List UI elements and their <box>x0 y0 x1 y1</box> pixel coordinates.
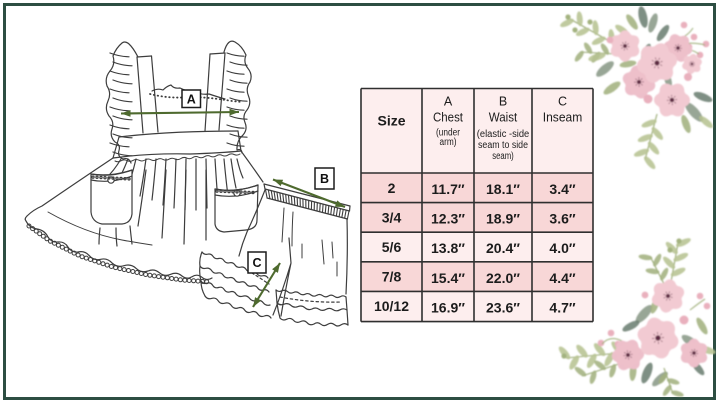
svg-text:16.9″: 16.9″ <box>431 299 465 315</box>
svg-text:3.6″: 3.6″ <box>549 211 575 227</box>
svg-text:2: 2 <box>388 180 396 196</box>
svg-text:seam): seam) <box>492 151 514 162</box>
svg-text:7/8: 7/8 <box>382 269 402 285</box>
svg-text:18.1″: 18.1″ <box>486 181 520 197</box>
svg-text:15.4″: 15.4″ <box>431 270 465 286</box>
svg-text:20.4″: 20.4″ <box>486 240 520 256</box>
svg-text:arm): arm) <box>440 137 457 148</box>
svg-text:(elastic -side: (elastic -side <box>477 129 530 140</box>
svg-text:4.4″: 4.4″ <box>549 270 575 286</box>
svg-text:3.4″: 3.4″ <box>549 181 575 197</box>
svg-text:Inseam: Inseam <box>543 111 583 125</box>
svg-text:Size: Size <box>377 113 405 129</box>
svg-text:B: B <box>499 95 507 109</box>
svg-text:4.7″: 4.7″ <box>549 299 575 315</box>
svg-text:5/6: 5/6 <box>382 239 402 255</box>
svg-text:B: B <box>320 172 329 186</box>
svg-text:C: C <box>558 95 567 109</box>
svg-text:Waist: Waist <box>489 110 518 124</box>
svg-text:11.7″: 11.7″ <box>431 181 464 197</box>
svg-text:10/12: 10/12 <box>374 298 409 314</box>
svg-text:A: A <box>444 95 453 109</box>
svg-text:seam to side: seam to side <box>478 140 528 151</box>
svg-text:4.0″: 4.0″ <box>549 240 575 256</box>
svg-text:Chest: Chest <box>433 111 463 125</box>
svg-text:18.9″: 18.9″ <box>486 211 520 227</box>
svg-text:3/4: 3/4 <box>382 209 402 225</box>
svg-text:23.6″: 23.6″ <box>486 299 520 315</box>
svg-text:22.0″: 22.0″ <box>486 270 520 286</box>
svg-text:C: C <box>252 256 261 270</box>
svg-text:13.8″: 13.8″ <box>431 240 465 256</box>
svg-text:12.3″: 12.3″ <box>431 211 465 227</box>
svg-text:A: A <box>187 92 196 106</box>
